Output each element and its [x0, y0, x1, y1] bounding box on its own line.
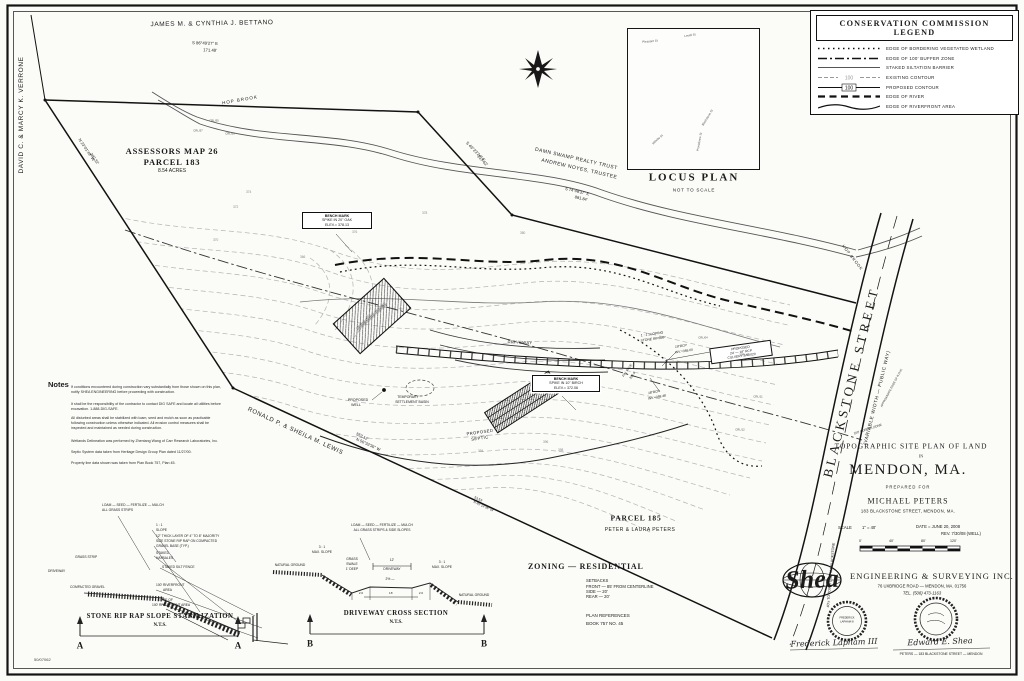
contour-elevation-label: 380	[520, 232, 525, 236]
zoning-heading: ZONING — RESIDENTIAL	[528, 562, 644, 571]
setback-rear: REAR — 20'	[586, 595, 610, 600]
wetland-flag-label: CRL/57	[193, 129, 202, 132]
detail-b-width-label-2: DRIVEWAY	[383, 568, 400, 572]
scalebar-tick: 120'	[950, 539, 957, 543]
detail-b-loam-label-2: ALL GRASS STRIPS & SIDE SLOPES	[354, 529, 411, 533]
acreage-label: 8.54 ACRES	[158, 169, 186, 175]
detail-a-riverfront-label-2: AREA	[163, 589, 172, 593]
firm-name: ENGINEERING & SURVEYING INC.	[850, 571, 1014, 581]
legend-row: EDGE OF 100' BUFFER ZONE	[811, 54, 1018, 64]
legend-label: EXISTING CONTOUR	[886, 75, 935, 80]
existing-contour-sample-icon: 100	[818, 73, 880, 82]
scale-value: 1" = 40'	[862, 526, 876, 531]
scalebar-tick: 40'	[889, 539, 894, 543]
note-paragraph: Wetlands Delineation was performed by Zh…	[71, 439, 223, 444]
legend-label: PROPOSED CONTOUR	[886, 85, 939, 90]
svg-text:100: 100	[845, 76, 854, 82]
contour-elevation-label: 374	[246, 191, 251, 195]
detail-a-riprap-label-3: GRAVEL BASE (TYP.)	[156, 545, 189, 549]
culvert-leaders	[650, 352, 710, 392]
settlement-basin-label-1: TEMPORARY	[397, 395, 418, 399]
date-value: DATE = JUNE 20, 2008	[916, 525, 960, 530]
note-paragraph: Septic System data taken from Heritage D…	[71, 450, 223, 455]
plan-references-value: BOOK 757 NO. 45	[586, 621, 623, 626]
svg-text:100: 100	[845, 85, 854, 91]
signature-lines	[790, 648, 990, 650]
detail-b-slope-right-2: MAX. SLOPE	[432, 566, 452, 570]
note-paragraph: If conditions encountered during constru…	[71, 385, 223, 395]
client-name: MICHAEL PETERS	[867, 496, 948, 505]
legend-row: EDGE OF BORDERING VEGETATED WETLAND	[811, 44, 1018, 54]
note-paragraph: All disturbed areas shall be stabilized …	[71, 416, 223, 431]
proposed-well-symbol	[372, 388, 386, 400]
detail-b-dim-left: 2.0	[359, 592, 363, 596]
firm-address: 76 UXBRIDGE ROAD — MENDON, MA. 01756	[878, 585, 967, 590]
legend-row: EDGE OF RIVER	[811, 92, 1018, 102]
proposed-well-label-2: WELL	[351, 403, 361, 407]
detail-a-slope-label-2: SLOPE	[156, 529, 167, 533]
wetland-flag-label: CRL/04	[698, 336, 707, 339]
detail-a-marker-right: A	[235, 641, 242, 652]
detail-b-swale-label-3: 1' DEEP	[346, 568, 358, 572]
existing-contours	[98, 215, 790, 532]
legend-label: EDGE OF RIVERFRONT AREA	[886, 104, 955, 109]
firm-phone: TEL. (508) 473-1163	[903, 592, 941, 597]
note-paragraph: It shall be the responsibility of the co…	[71, 402, 223, 412]
legend-title: CONSERVATION COMMISSION LEGEND	[816, 15, 1013, 41]
benchmark-2-box: BENCH MARK SPIKE IN 10" BIRCH ELEV.= 372…	[532, 375, 600, 392]
detail-a-grass-strip-label: GRASS STRIP	[75, 556, 97, 560]
survey-sheet: CONSERVATION COMMISSION LEGEND EDGE OF B…	[0, 0, 1024, 681]
contour-elevation-label: 366	[300, 256, 305, 260]
scalebar-tick: 0'	[859, 539, 862, 543]
contour-elevation-label: 378	[422, 212, 427, 216]
revision-value: REV. 7/30/08 (WELL)	[941, 532, 981, 537]
locus-plan-title: LOCUS PLAN	[649, 172, 740, 185]
detail-a-loam-label-2: ALL GRASS STRIPS	[102, 509, 133, 513]
wetland-flag-label: CRL/59	[225, 132, 234, 135]
contour-elevation-label: 394	[478, 450, 483, 454]
prepared-for-label: PREPARED FOR	[886, 486, 931, 491]
buffer-zone-sample-icon	[818, 54, 880, 63]
distance-north: 171.48'	[203, 48, 217, 53]
scalebar-tick: 80'	[921, 539, 926, 543]
detail-a-driveway-label: DRIVEWAY	[48, 570, 65, 574]
detail-b-marker-left: B	[307, 639, 313, 650]
wetland-flag-label: CRL/12	[735, 428, 744, 431]
conservation-legend: CONSERVATION COMMISSION LEGEND EDGE OF B…	[810, 10, 1019, 115]
detail-b-slope-left-2: MAX. SLOPE	[312, 551, 332, 555]
contour-elevation-label: 398	[558, 449, 563, 453]
scale-label: SCALE	[838, 526, 852, 531]
proposed-well-label-1: PROPOSED	[348, 398, 368, 402]
detail-b-dim-mid: 16'	[389, 592, 393, 596]
title-town: MENDON, MA.	[849, 462, 967, 480]
bearing-north: S 86°49'27" E	[192, 41, 218, 47]
legend-label: EDGE OF 100' BUFFER ZONE	[886, 56, 955, 61]
legend-row: 100 PROPOSED CONTOUR	[811, 82, 1018, 92]
siltation-barrier-sample-icon	[818, 63, 880, 72]
benchmark-1-box: BENCH MARK SPIKE IN 20" OAK ELEV.= 378.1…	[302, 212, 372, 229]
detail-a-haybales-label-2: HAYBALES	[156, 557, 173, 561]
legend-row: STAKED SILTATION BARRIER	[811, 63, 1018, 73]
legend-row: EDGE OF RIVERFRONT AREA	[811, 102, 1018, 112]
detail-a-compacted-label: COMPACTED GRAVEL	[70, 586, 105, 590]
seal-name-line-2: LAPHAM III	[840, 620, 854, 623]
locus-plan-subtitle: NOT TO SCALE	[673, 187, 715, 192]
detail-a-marker-left: A	[77, 641, 84, 652]
parcel185-owner-label: PETER & LAURA PETERS	[605, 528, 676, 534]
scale-bar	[860, 546, 960, 551]
assessors-map-label: ASSESSORS MAP 26	[126, 146, 219, 156]
detail-b-natural-right: NATURAL GROUND	[459, 594, 490, 598]
north-arrow-icon	[519, 50, 557, 88]
locus-plan-box	[627, 28, 760, 170]
contour-elevation-label: 372	[233, 206, 238, 210]
title-line-2: IN	[919, 455, 923, 460]
benchmark-2-elev: ELEV.= 372.06	[535, 386, 597, 390]
contour-elevation-label: 396	[543, 441, 548, 445]
title-line-1: TOPOGRAPHIC SITE PLAN OF LAND	[835, 443, 988, 452]
detail-b-natural-left: NATURAL GROUND	[275, 564, 306, 568]
riverfront-area-sample-icon	[818, 102, 880, 111]
wetland-flag-label: CRL/08	[740, 353, 749, 356]
firm-logo-text: Shea	[785, 564, 840, 597]
client-address: 183 BLACKSTONE STREET, MENDON, MA.	[861, 510, 955, 515]
legend-row: 100 EXISTING CONTOUR	[811, 73, 1018, 83]
parcel-number-label: PARCEL 183	[144, 157, 201, 167]
detail-b-nts: N.T.S.	[389, 620, 402, 626]
proposed-contour-sample-icon: 100	[818, 83, 880, 92]
settlement-basin-label-2: SETTLEMENT BASIN	[395, 400, 428, 404]
benchmark-1-elev: ELEV.= 378.13	[305, 223, 369, 227]
engineer-seal-icon	[915, 598, 957, 640]
legend-label: EDGE OF RIVER	[886, 94, 924, 99]
abutter-west-label: DAVID C. & MARCY K. VERRONE	[18, 56, 26, 173]
settlement-basin-symbol	[406, 380, 434, 396]
sheet-number: 50/07062	[34, 658, 51, 663]
wetland-flag-label: CRL/55	[209, 119, 218, 122]
detail-b-width-label-1: 12'	[390, 559, 394, 563]
detail-b-grade-label: 2% —	[386, 578, 395, 582]
legend-label: EDGE OF BORDERING VEGETATED WETLAND	[886, 46, 994, 51]
wetland-flag-label: CRL/11	[753, 395, 762, 398]
contour-elevation-label: 370	[213, 239, 218, 243]
note-paragraph: Property line data shown was taken from …	[71, 461, 223, 466]
edge-of-river-sample-icon	[818, 92, 880, 101]
detail-a-nts: N.T.S.	[153, 623, 166, 629]
detail-b-drawing	[273, 538, 492, 634]
plan-references-title: PLAN REFERENCES	[586, 613, 630, 618]
detail-b-marker-right: B	[481, 639, 487, 650]
firm-footer-note: PETERS — 183 BLACKSTONE STREET — MENDON	[900, 652, 983, 656]
contour-elevation-label: 376	[352, 231, 357, 235]
parcel185-label: PARCEL 185	[611, 515, 662, 524]
legend-label: STAKED SILTATION BARRIER	[886, 65, 954, 70]
notes-heading: Notes	[48, 381, 69, 390]
seal-name-line-1: FREDERICK	[840, 616, 855, 619]
detail-a-silt-fence-label: STAKED SILT FENCE	[162, 566, 195, 570]
detail-a-edge-label-2: 100' RIVERFRONT AREA	[152, 604, 190, 608]
detail-b-title: DRIVEWAY CROSS SECTION	[344, 610, 449, 618]
detail-b-dim-right: 2.0	[419, 592, 423, 596]
hop-brook-line	[152, 92, 922, 257]
detail-a-title: STONE RIP RAP SLOPE STABILIZATION	[87, 613, 234, 621]
wetland-edge-sample-icon	[818, 44, 880, 53]
